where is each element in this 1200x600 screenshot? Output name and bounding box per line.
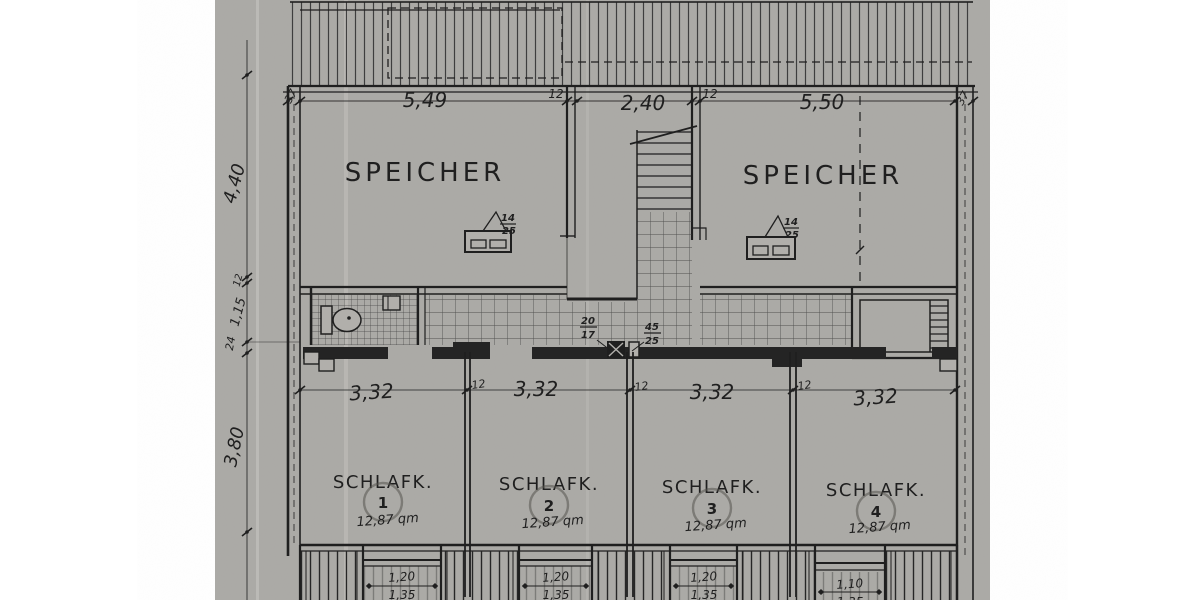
- window-inner-width: 1,35: [389, 588, 416, 600]
- dim-room-width: 3,32: [852, 383, 898, 410]
- bedroom-label: SCHLAFK.: [826, 480, 926, 501]
- dormer-bay: [441, 545, 519, 600]
- dormer-bay: [737, 545, 815, 600]
- duct-right-den: 25: [645, 336, 659, 347]
- duct-left-den: 17: [581, 330, 595, 341]
- window-inner-width: 1,35: [543, 588, 570, 600]
- attic-right-label: SPEICHER: [743, 161, 903, 191]
- bedroom-label: SCHLAFK.: [499, 474, 599, 495]
- dim-wall-mid-right: 12: [702, 87, 717, 101]
- toilet-icon: [321, 306, 361, 334]
- bedroom-number: 1: [378, 494, 388, 512]
- attic-left-label: SPEICHER: [345, 158, 505, 188]
- dim-partition: 12: [471, 377, 487, 392]
- dim-room-width: 3,32: [348, 378, 394, 405]
- dim-partition: 12: [797, 378, 813, 393]
- door-jamb-detail: [319, 359, 334, 371]
- scanned-floor-plan: 20 17 45 25 SPEICHER 14 25 SPEICHER 14: [0, 0, 1200, 600]
- chimney-left-den: 25: [502, 226, 516, 237]
- dormer-bay: [300, 545, 363, 600]
- window-width: 1,20: [690, 569, 718, 585]
- duct-left-num: 20: [581, 316, 595, 327]
- dormer-bay: [885, 545, 957, 600]
- window-width: 1,10: [836, 576, 864, 592]
- floor-plan-svg: 20 17 45 25 SPEICHER 14 25 SPEICHER 14: [0, 0, 1200, 600]
- cistern-icon: [383, 296, 400, 310]
- bedroom-number: 3: [707, 500, 717, 518]
- window-width: 1,20: [388, 569, 416, 585]
- bedroom-label: SCHLAFK.: [662, 477, 762, 498]
- window-inner-width: 1,35: [691, 588, 718, 600]
- window-width: 1,20: [542, 569, 570, 585]
- dim-span-mid: 2,40: [621, 91, 666, 115]
- roof-hatch-band: [283, 2, 978, 92]
- bedroom-number: 2: [544, 497, 554, 515]
- bathroom: [311, 287, 425, 345]
- dim-partition: 12: [634, 379, 650, 394]
- window-inner-width: 1,35: [837, 595, 864, 600]
- dim-left-wall2: 24: [223, 335, 238, 351]
- door-jamb-detail: [304, 352, 319, 364]
- dim-span-right: 5,50: [800, 90, 845, 114]
- chimney-right-num: 14: [784, 217, 798, 228]
- dim-wall-mid-left: 12: [548, 87, 563, 101]
- door-jamb-detail: [940, 359, 957, 371]
- chimney-left-num: 14: [501, 213, 515, 224]
- dormer-bay: [592, 545, 670, 600]
- dim-room-width: 3,32: [514, 377, 559, 401]
- dim-room-width: 3,32: [690, 380, 735, 404]
- bedroom-number: 4: [871, 503, 881, 521]
- chimney-right-den: 25: [785, 230, 799, 241]
- dim-span-left: 5,49: [403, 88, 448, 112]
- duct-right-num: 45: [644, 322, 659, 333]
